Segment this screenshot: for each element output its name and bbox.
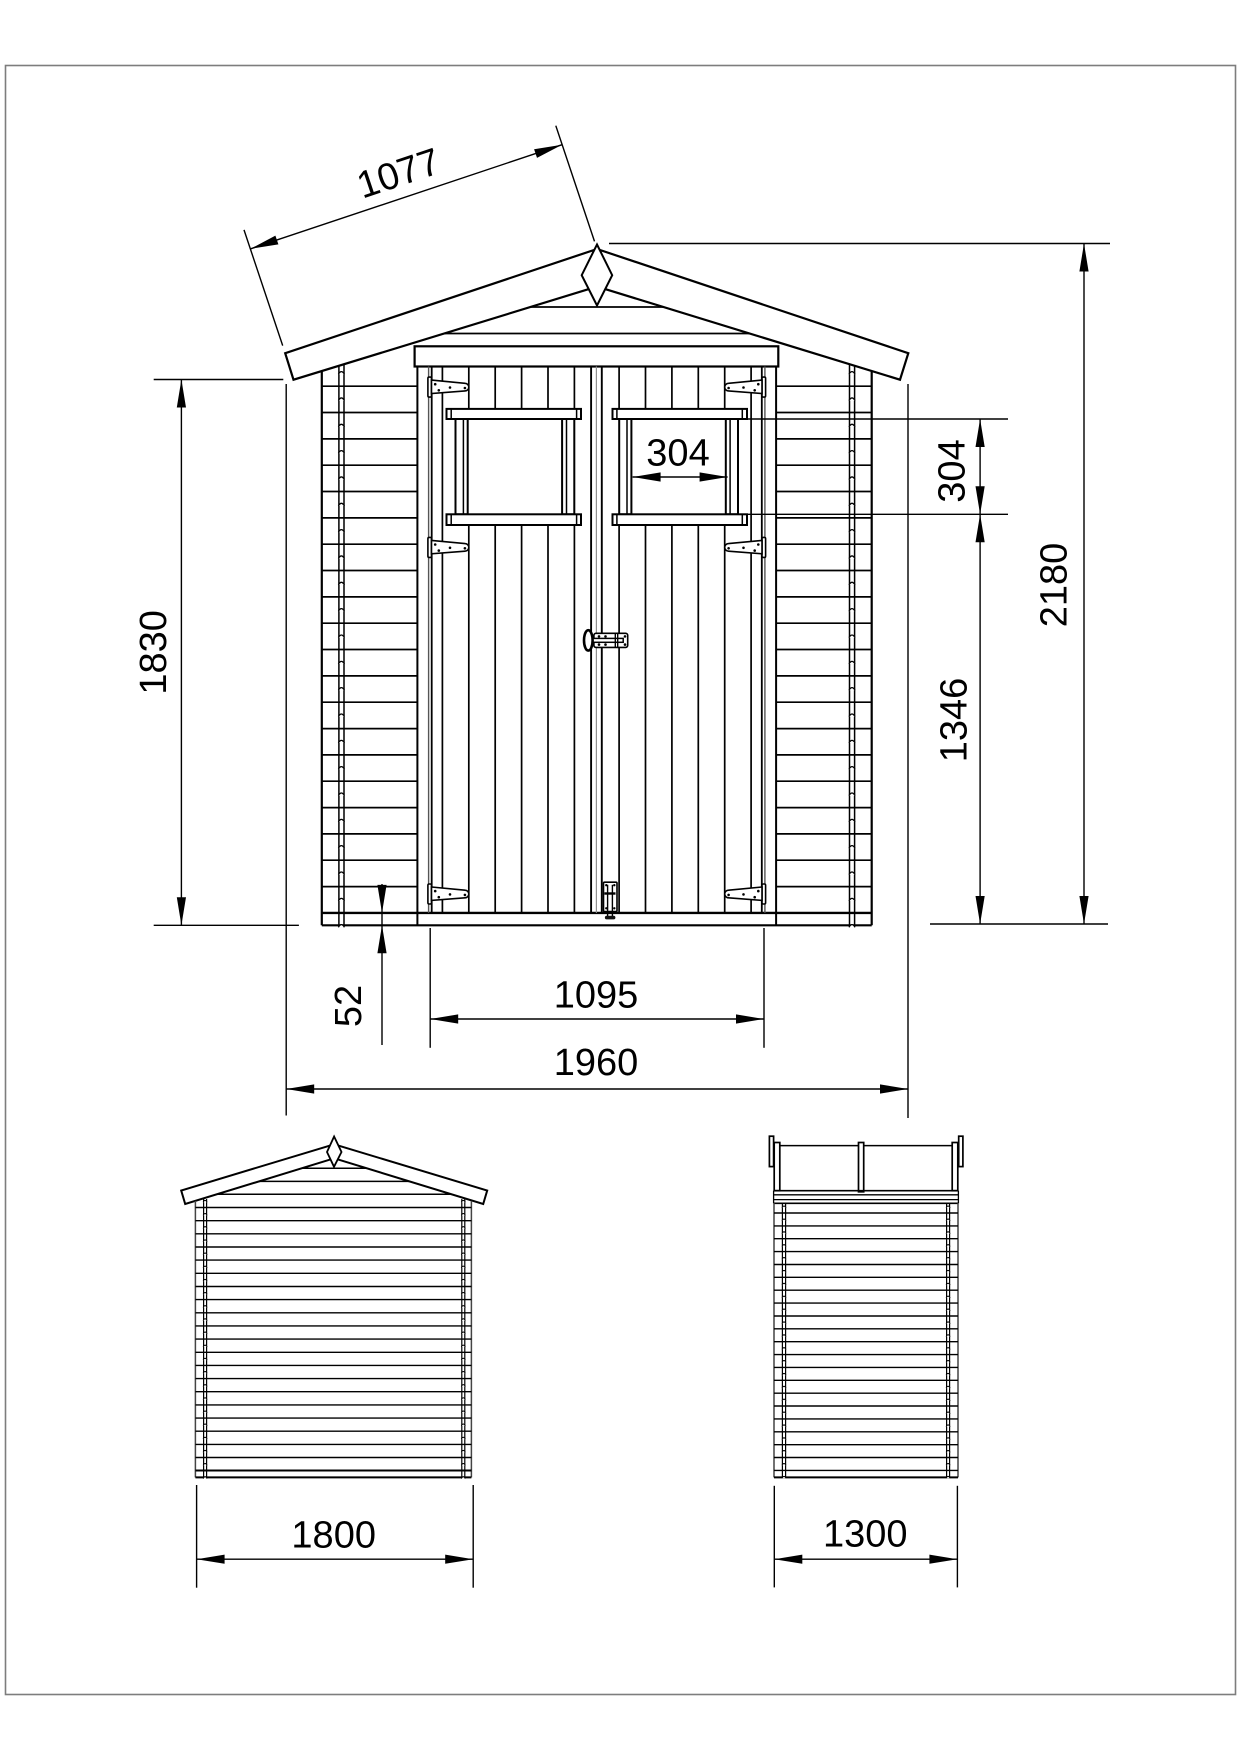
svg-text:1830: 1830 — [133, 610, 175, 695]
svg-text:304: 304 — [646, 433, 709, 475]
svg-text:1800: 1800 — [291, 1515, 376, 1557]
svg-text:52: 52 — [328, 985, 370, 1027]
svg-text:1095: 1095 — [554, 975, 639, 1017]
svg-text:304: 304 — [932, 439, 974, 502]
svg-text:1300: 1300 — [823, 1514, 908, 1556]
svg-text:1077: 1077 — [352, 141, 445, 208]
svg-text:1346: 1346 — [934, 678, 976, 763]
svg-text:1960: 1960 — [554, 1042, 639, 1084]
svg-text:2180: 2180 — [1034, 543, 1076, 628]
